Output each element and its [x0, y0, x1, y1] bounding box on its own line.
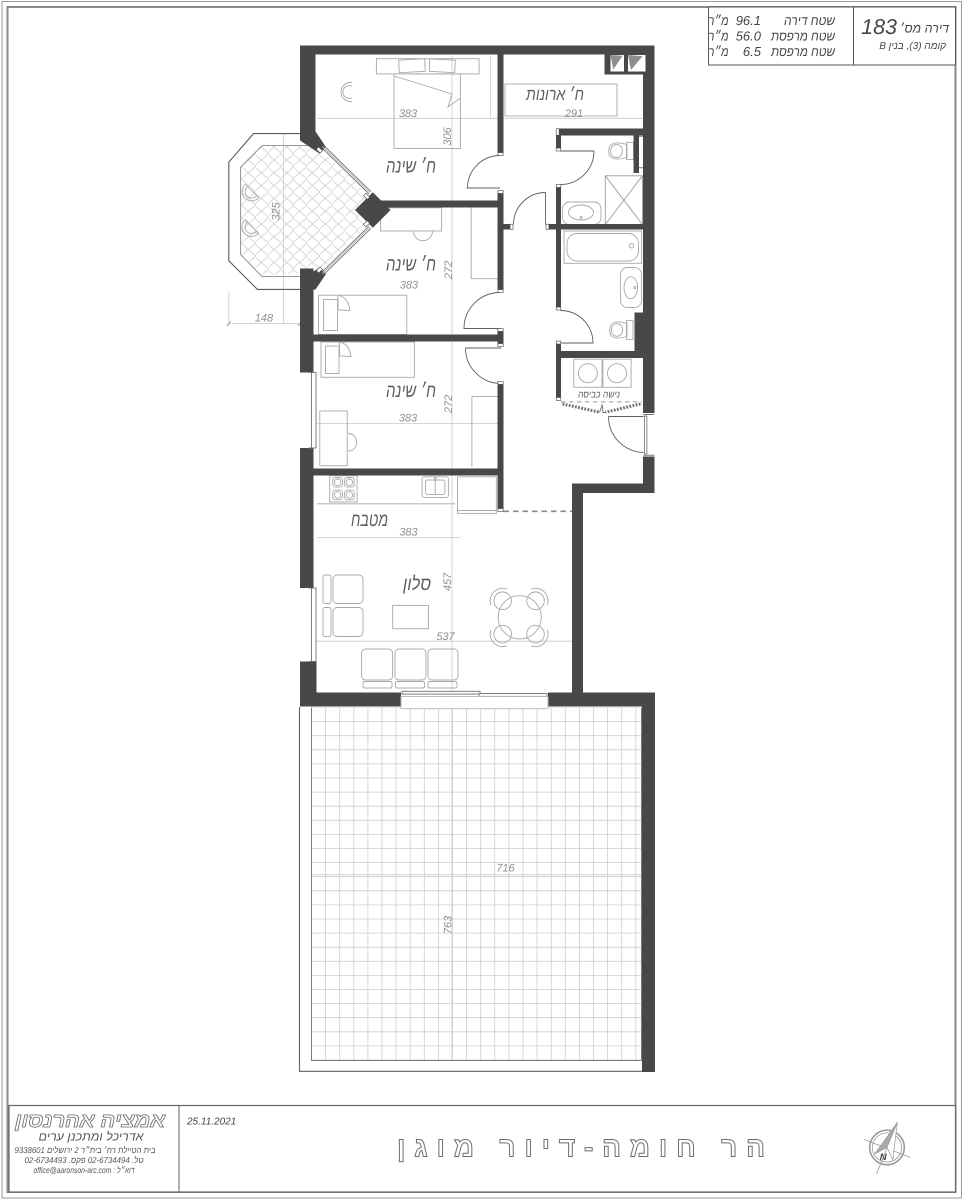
svg-text:אדריכל ומתכנן ערים: אדריכל ומתכנן ערים	[39, 1130, 144, 1144]
svg-text:ח׳ שינה: ח׳ שינה	[386, 255, 436, 276]
svg-text:קומה (3), בנין B: קומה (3), בנין B	[879, 41, 946, 52]
svg-text:383: 383	[399, 413, 418, 425]
svg-text:56.0: 56.0	[736, 29, 762, 44]
svg-text:נישה כביסה: נישה כביסה	[578, 389, 620, 400]
svg-text:טל. 02-6734494 פקס. 02-673449: טל. 02-6734494 פקס. 02-6734493	[25, 1155, 144, 1165]
svg-text:שטח מרפסת: שטח מרפסת	[770, 29, 835, 44]
svg-text:183: 183	[861, 15, 897, 39]
svg-text:537: 537	[436, 631, 455, 643]
svg-text:6.5: 6.5	[743, 44, 762, 59]
svg-text:716: 716	[496, 863, 515, 875]
svg-text:שטח מרפסת: שטח מרפסת	[770, 44, 835, 59]
svg-text:383: 383	[399, 527, 418, 539]
svg-text:ח׳ שינה: ח׳ שינה	[386, 381, 436, 402]
svg-text:383: 383	[400, 280, 419, 292]
svg-text:ח׳ ארונות: ח׳ ארונות	[525, 85, 584, 104]
svg-text:148: 148	[255, 313, 274, 325]
svg-text:מ״ר: מ״ר	[709, 44, 729, 59]
svg-text:272: 272	[443, 261, 455, 280]
svg-text:שטח דירה: שטח דירה	[784, 13, 835, 28]
svg-text:דוא״ל : office@aaronson-arc.co: דוא״ל : office@aaronson-arc.com	[34, 1165, 136, 1175]
svg-text:457: 457	[442, 572, 454, 591]
svg-text:מ״ר: מ״ר	[709, 13, 729, 28]
svg-text:סלון: סלון	[402, 574, 431, 595]
svg-text:325: 325	[271, 201, 283, 220]
svg-text:מטבח: מטבח	[351, 510, 388, 531]
svg-text:N: N	[880, 1152, 888, 1163]
svg-text:דירה מס׳: דירה מס׳	[900, 22, 951, 36]
svg-text:763: 763	[443, 915, 455, 934]
svg-text:383: 383	[399, 108, 418, 120]
svg-text:מ״ר: מ״ר	[709, 29, 729, 44]
svg-text:ח׳ שינה: ח׳ שינה	[386, 157, 436, 178]
svg-text:96.1: 96.1	[736, 13, 761, 28]
svg-text:291: 291	[564, 108, 583, 120]
svg-text:בית הטיילת רח׳ בית״ר 2 ירושל: בית הטיילת רח׳ בית״ר 2 ירושלים 9338601	[15, 1145, 156, 1155]
svg-text:25.11.2021: 25.11.2021	[186, 1117, 236, 1128]
svg-text:272: 272	[443, 395, 455, 414]
svg-text:306: 306	[442, 126, 454, 145]
